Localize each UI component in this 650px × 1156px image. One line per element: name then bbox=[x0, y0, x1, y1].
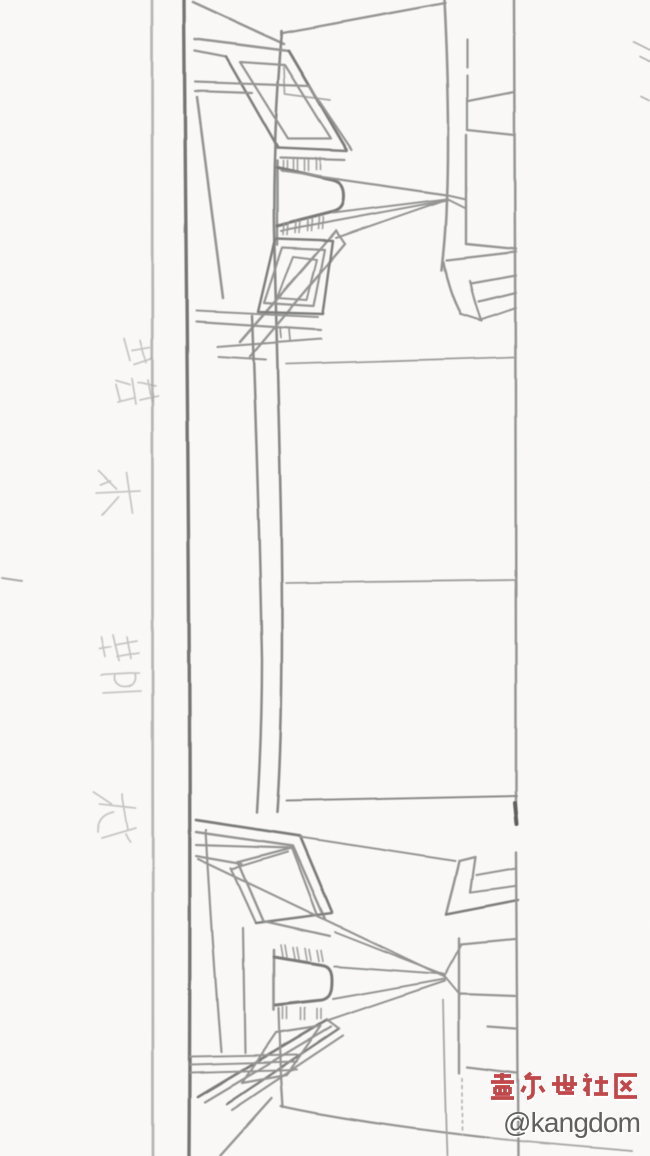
svg-text:@kangdom: @kangdom bbox=[503, 1107, 641, 1138]
